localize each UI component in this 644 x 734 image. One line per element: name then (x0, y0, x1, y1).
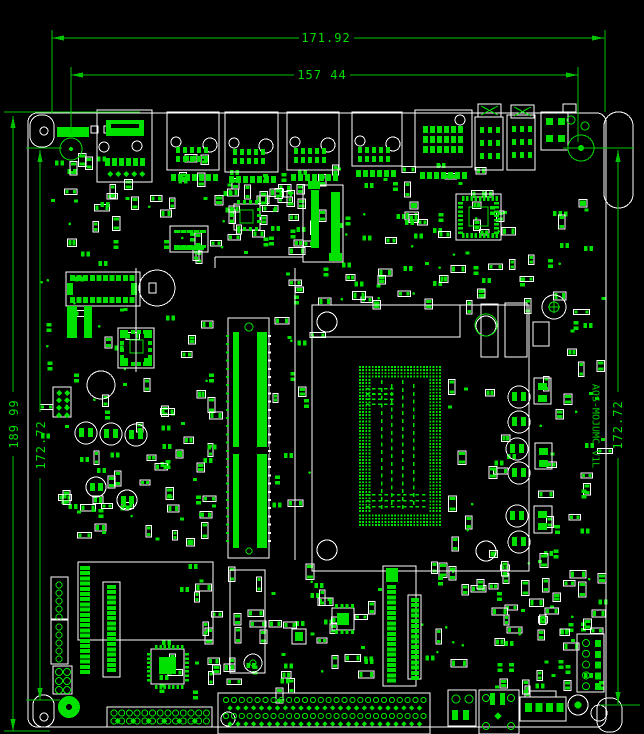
board-name-label: AOS-MOJUMC V1L (590, 384, 601, 468)
dimension-label-top-inner: 157 44 (297, 68, 346, 82)
dimension-label-top-outer: 171.92 (301, 31, 350, 45)
dimension-label-right: 172.72 (611, 400, 625, 449)
dimension-label-left-outer: 189 99 (7, 399, 21, 448)
dimension-label-left-inner: 172.72 (34, 420, 48, 469)
scatter-components (40, 154, 612, 703)
board-components (28, 104, 633, 734)
pcb-layout-viewport: 171.92 157 44 189 99 172.72 172.72 AOS-M… (0, 0, 644, 734)
pcb-canvas (0, 0, 644, 734)
